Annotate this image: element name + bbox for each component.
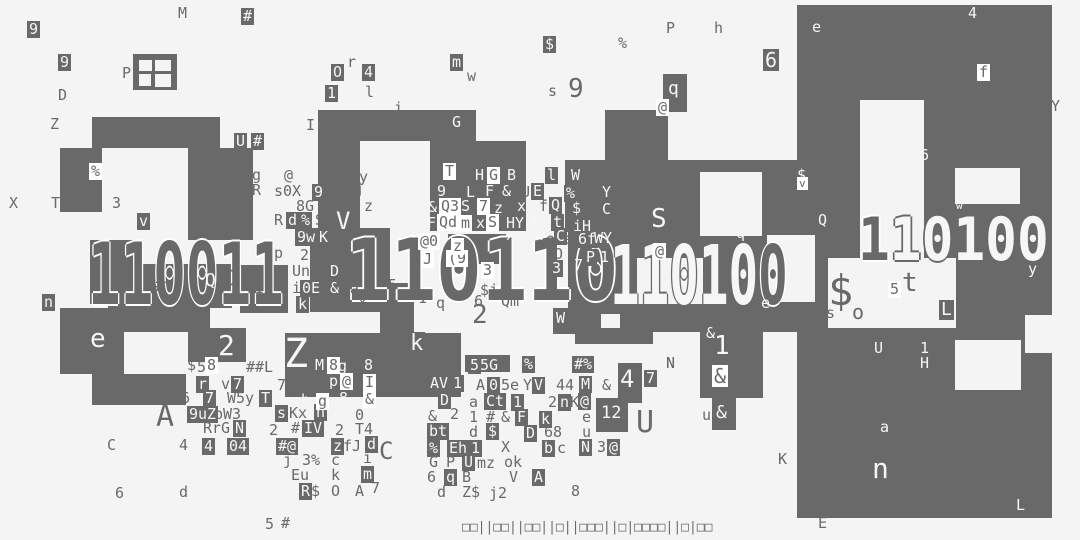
- binary-line: □□||□□||□□||□||□□□||□|□□□□||□|□□: [462, 521, 712, 534]
- noise-glyph: q: [668, 80, 679, 98]
- noise-glyph: &: [328, 280, 341, 297]
- noise-glyph: D: [328, 263, 341, 280]
- noise-glyph: I: [255, 281, 264, 296]
- noise-glyph: 3: [112, 196, 121, 211]
- noise-glyph: k: [331, 468, 340, 483]
- noise-glyph: r: [347, 55, 356, 70]
- binary-digit: 0: [729, 236, 759, 318]
- noise-glyph: i: [394, 101, 403, 116]
- noise-glyph: b: [542, 440, 555, 457]
- noise-glyph: 8: [205, 357, 218, 374]
- noise-glyph: S: [651, 206, 667, 232]
- noise-glyph: x: [506, 228, 515, 243]
- noise-glyph: m: [450, 54, 463, 71]
- noise-glyph: P: [666, 21, 675, 36]
- noise-glyph: 7: [538, 228, 547, 243]
- noise-glyph: P: [364, 278, 373, 293]
- noise-glyph: %: [522, 356, 535, 373]
- noise-glyph: &: [363, 391, 376, 408]
- noise-glyph: @: [656, 99, 669, 116]
- noise-glyph: W: [554, 310, 567, 327]
- noise-glyph: 3: [481, 262, 494, 279]
- noise-glyph: S: [315, 213, 324, 228]
- noise-glyph: 8: [571, 484, 580, 499]
- noise-glyph: 4: [179, 438, 188, 453]
- noise-glyph: j2: [489, 486, 507, 501]
- noise-glyph: 3: [597, 440, 606, 455]
- noise-glyph: k: [296, 296, 309, 313]
- noise-glyph: A: [476, 378, 485, 393]
- noise-glyph: &: [714, 403, 729, 423]
- noise-glyph: 6: [115, 486, 124, 501]
- noise-glyph: 5e: [501, 378, 519, 393]
- noise-glyph: y: [1028, 262, 1037, 277]
- noise-glyph: T: [443, 163, 456, 180]
- mosaic-block: [92, 117, 220, 148]
- mosaic-block: [575, 328, 653, 344]
- binary-number-1: 110011: [88, 232, 284, 318]
- noise-glyph: p: [329, 374, 338, 389]
- noise-glyph: g: [316, 393, 329, 410]
- noise-glyph: J: [421, 251, 434, 268]
- noise-glyph: @0: [418, 233, 440, 250]
- noise-glyph: E: [818, 516, 827, 531]
- mosaic-cutout: [700, 172, 762, 236]
- noise-glyph: b: [301, 393, 310, 408]
- noise-glyph: L: [1016, 498, 1025, 513]
- noise-glyph: A: [355, 484, 364, 499]
- noise-glyph: d: [437, 485, 446, 500]
- noise-glyph: I: [306, 118, 315, 133]
- noise-glyph: #: [281, 516, 290, 531]
- noise-glyph: Y: [602, 185, 611, 200]
- noise-glyph: 9: [27, 21, 40, 38]
- noise-glyph: d: [179, 485, 188, 500]
- noise-glyph: &: [712, 365, 728, 387]
- noise-glyph: Qd: [437, 214, 459, 231]
- noise-glyph: l: [545, 167, 558, 184]
- noise-glyph: 7: [574, 258, 583, 273]
- noise-glyph: w: [467, 69, 476, 84]
- noise-glyph: e: [761, 296, 770, 311]
- noise-glyph: s: [826, 306, 835, 321]
- noise-glyph: Y: [1051, 99, 1060, 114]
- noise-glyph: 8: [364, 358, 373, 373]
- noise-glyph: z: [451, 238, 464, 255]
- noise-glyph: V: [532, 377, 545, 394]
- noise-glyph: T: [51, 196, 60, 211]
- noise-glyph: &: [502, 184, 511, 199]
- noise-glyph: L: [939, 300, 954, 320]
- noise-glyph: @: [653, 243, 666, 260]
- noise-glyph: 4: [202, 438, 215, 455]
- binary-digit: 1: [858, 210, 890, 270]
- mosaic-block: [605, 110, 668, 160]
- mosaic-cutout: [955, 168, 1020, 204]
- noise-glyph: 9w: [295, 229, 317, 246]
- noise-glyph: %: [89, 163, 102, 180]
- noise-glyph: 2: [335, 423, 344, 438]
- mosaic-cutout: [955, 340, 1021, 390]
- noise-glyph: %: [618, 36, 627, 51]
- binary-digit: 0: [922, 210, 954, 270]
- noise-glyph: Eu: [291, 468, 309, 483]
- noise-glyph: IV: [302, 420, 324, 437]
- noise-glyph: v: [137, 213, 150, 230]
- noise-glyph: Z$: [462, 485, 480, 500]
- noise-glyph: L: [331, 185, 340, 200]
- noise-glyph: X: [9, 196, 18, 211]
- noise-glyph: x: [476, 216, 485, 231]
- noise-glyph: V: [509, 470, 518, 485]
- mosaic-cutout: [1025, 315, 1052, 353]
- noise-glyph: 9: [58, 54, 71, 71]
- noise-glyph: B: [507, 168, 516, 183]
- noise-glyph: C: [107, 438, 116, 453]
- noise-glyph: 1: [325, 85, 338, 102]
- binary-digit: 1: [953, 210, 985, 270]
- noise-glyph: &: [501, 410, 510, 425]
- noise-glyph: 2: [450, 407, 459, 422]
- noise-glyph: 7: [371, 481, 380, 496]
- noise-glyph: O: [331, 484, 340, 499]
- noise-glyph: 44: [556, 378, 574, 393]
- noise-glyph: p: [274, 246, 283, 261]
- noise-glyph: e: [812, 20, 821, 35]
- noise-glyph: O: [331, 64, 344, 81]
- noise-glyph: h: [350, 265, 359, 280]
- noise-glyph: C: [554, 228, 567, 245]
- binary-digit: 1: [890, 210, 922, 270]
- noise-glyph: 6: [427, 470, 436, 485]
- noise-glyph: S: [461, 199, 470, 214]
- noise-glyph: $: [486, 423, 499, 440]
- noise-glyph: N: [233, 420, 246, 437]
- noise-glyph: C: [379, 439, 393, 463]
- noise-glyph: V: [334, 208, 352, 234]
- noise-glyph: k: [408, 332, 425, 356]
- noise-glyph: P: [122, 66, 131, 81]
- noise-glyph: #: [241, 8, 254, 25]
- noise-glyph: s: [548, 84, 557, 99]
- noise-glyph: $: [543, 36, 556, 53]
- binary-digit: 0: [669, 236, 699, 318]
- noise-glyph: 6: [763, 49, 779, 71]
- noise-glyph: 1: [451, 375, 464, 392]
- noise-glyph: W: [569, 167, 582, 184]
- binary-digit: 1: [88, 232, 121, 318]
- noise-glyph: RrG: [203, 421, 230, 436]
- noise-glyph: v: [322, 298, 331, 313]
- binary-number-4: 110100: [858, 210, 1049, 270]
- noise-glyph: d: [469, 425, 478, 440]
- noise-glyph: ##L: [246, 360, 273, 375]
- noise-glyph: #: [155, 277, 166, 295]
- noise-glyph: K: [778, 452, 787, 467]
- noise-glyph: 5G: [480, 358, 498, 373]
- noise-glyph: s: [275, 405, 288, 422]
- noise-glyph: 6: [181, 391, 190, 406]
- noise-glyph: W5y: [227, 391, 254, 406]
- noise-glyph: U: [636, 408, 654, 438]
- noise-glyph: n: [42, 294, 55, 311]
- noise-glyph: 4: [968, 6, 977, 21]
- noise-glyph: I: [363, 374, 376, 391]
- noise-glyph: 5: [388, 278, 397, 293]
- noise-glyph: Q: [226, 268, 238, 288]
- noise-glyph: &: [428, 200, 437, 215]
- noise-glyph: Z: [445, 358, 454, 373]
- noise-glyph: e: [90, 326, 106, 352]
- noise-glyph: AV: [428, 375, 450, 392]
- noise-glyph: o: [852, 302, 864, 322]
- noise-glyph: 04: [227, 438, 249, 455]
- noise-glyph: q: [436, 296, 445, 311]
- noise-glyph: 2: [548, 395, 557, 410]
- noise-glyph: c: [557, 441, 566, 456]
- noise-glyph: 4: [362, 64, 375, 81]
- noise-glyph: x: [517, 199, 526, 214]
- noise-glyph: Q: [205, 272, 216, 290]
- noise-glyph: f: [977, 64, 990, 81]
- noise-glyph: bt: [427, 423, 449, 440]
- mosaic-cutout: [139, 60, 152, 71]
- noise-glyph: n: [872, 455, 889, 483]
- noise-glyph: C: [602, 202, 611, 217]
- noise-glyph: l: [365, 85, 374, 100]
- noise-glyph: 7: [277, 378, 286, 393]
- noise-glyph: 6: [920, 148, 929, 163]
- noise-glyph: @: [284, 168, 293, 183]
- noise-glyph: T: [259, 390, 272, 407]
- noise-glyph: $: [570, 200, 583, 217]
- noise-glyph: G: [450, 114, 463, 131]
- noise-glyph: 2: [218, 332, 235, 360]
- noise-glyph: 5: [888, 281, 901, 298]
- noise-glyph: 2: [300, 248, 309, 263]
- noise-glyph: 1: [600, 250, 609, 265]
- noise-glyph: A: [156, 402, 174, 432]
- noise-glyph: 9: [568, 76, 584, 102]
- noise-glyph: S: [486, 214, 499, 231]
- noise-glyph: u: [702, 408, 711, 423]
- noise-glyph: M: [315, 358, 324, 373]
- noise-glyph: q: [736, 226, 745, 241]
- noise-glyph: t: [902, 270, 918, 296]
- noise-glyph: Y: [523, 378, 532, 393]
- noise-glyph: F: [427, 216, 436, 231]
- noise-glyph: H: [475, 168, 484, 183]
- noise-glyph: x: [358, 295, 367, 310]
- noise-glyph: 3: [550, 260, 563, 277]
- noise-glyph: mz: [477, 456, 495, 471]
- binary-digit: 1: [121, 232, 154, 318]
- noise-glyph: h: [714, 21, 723, 36]
- noise-glyph: $: [187, 358, 196, 373]
- noise-glyph: 68: [544, 425, 562, 440]
- noise-glyph: #: [251, 133, 264, 150]
- mosaic-cutout: [155, 74, 171, 87]
- noise-glyph: A: [532, 469, 545, 486]
- noise-glyph: #%: [572, 356, 594, 373]
- noise-glyph: i: [363, 451, 372, 466]
- binary-digit: 1: [699, 236, 729, 318]
- noise-glyph: P: [584, 249, 597, 266]
- noise-glyph: N: [579, 439, 592, 456]
- noise-glyph: %: [299, 212, 312, 229]
- mosaic-cutout: [155, 60, 171, 71]
- noise-canvas: Glitch noise screen: scattered terminal …: [0, 0, 1080, 540]
- noise-glyph: 4: [620, 367, 634, 391]
- binary-digit: 0: [985, 210, 1017, 270]
- noise-glyph: z: [364, 199, 373, 214]
- mosaic-cutout: [139, 74, 151, 86]
- noise-glyph: R: [274, 213, 283, 228]
- noise-glyph: a: [880, 420, 889, 435]
- noise-glyph: D: [58, 88, 67, 103]
- noise-glyph: Q: [818, 213, 827, 228]
- noise-glyph: K: [317, 229, 330, 246]
- noise-glyph: M: [178, 6, 187, 21]
- noise-glyph: U: [234, 133, 247, 150]
- noise-glyph: H: [920, 356, 929, 371]
- noise-glyph: 5: [265, 517, 274, 532]
- noise-glyph: @: [607, 439, 620, 456]
- noise-glyph: m: [459, 215, 472, 232]
- mosaic-block: [60, 148, 102, 212]
- noise-glyph: Unx: [292, 264, 319, 279]
- noise-glyph: M: [579, 376, 592, 393]
- noise-glyph: &: [602, 378, 611, 393]
- noise-glyph: U: [874, 341, 883, 356]
- noise-glyph: Q: [549, 197, 562, 214]
- noise-glyph: 1: [714, 333, 730, 359]
- noise-glyph: Z: [284, 334, 308, 374]
- noise-glyph: y: [359, 170, 368, 185]
- noise-glyph: Qm: [501, 294, 519, 309]
- noise-glyph: 12: [599, 404, 623, 423]
- noise-glyph: @: [340, 373, 353, 390]
- noise-glyph: R: [252, 183, 261, 198]
- noise-glyph: 8: [339, 391, 348, 406]
- noise-glyph: #: [291, 421, 300, 436]
- binary-digit: 1: [610, 236, 640, 318]
- noise-glyph: v: [797, 177, 808, 190]
- noise-glyph: &: [946, 370, 955, 385]
- noise-glyph: 1: [418, 291, 427, 306]
- noise-glyph: 7: [644, 370, 657, 387]
- noise-glyph: 2: [269, 423, 278, 438]
- noise-glyph: f: [539, 199, 548, 214]
- noise-glyph: 2: [472, 302, 488, 328]
- noise-glyph: N: [666, 356, 675, 371]
- noise-glyph: fJ: [343, 439, 361, 454]
- noise-glyph: Z: [50, 117, 59, 132]
- noise-glyph: d: [286, 212, 299, 229]
- noise-glyph: D: [524, 425, 537, 442]
- noise-glyph: $: [311, 484, 320, 499]
- noise-glyph: w: [956, 200, 963, 211]
- noise-glyph: 1: [1043, 388, 1052, 403]
- noise-glyph: WY: [594, 231, 612, 246]
